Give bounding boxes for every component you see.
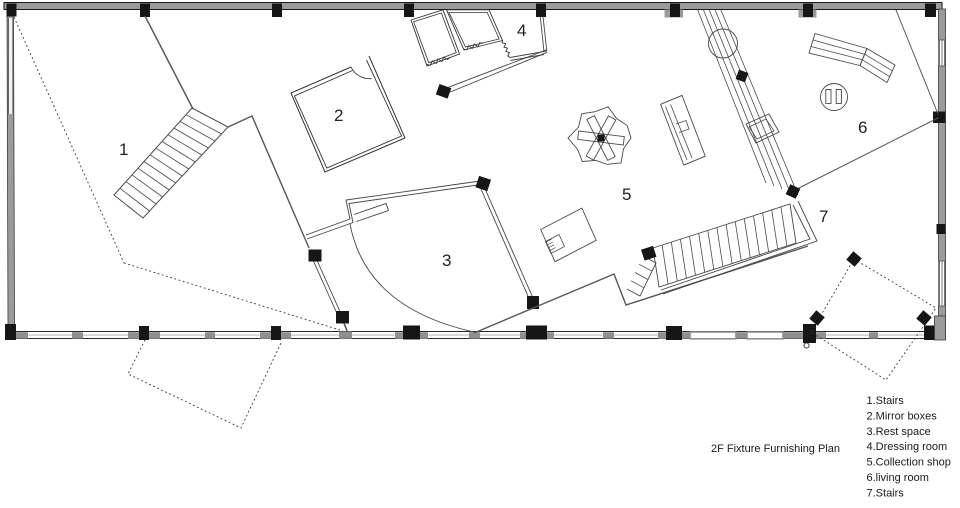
svg-text:7: 7 [819,207,828,226]
svg-text:3.Rest space: 3.Rest space [867,426,931,438]
svg-text:7.Stairs: 7.Stairs [867,487,905,499]
svg-text:2.Mirror boxes: 2.Mirror boxes [867,410,938,422]
svg-text:1: 1 [119,140,128,159]
svg-text:6.living room: 6.living room [867,472,929,484]
svg-text:2: 2 [334,106,343,125]
svg-text:4.Dressing room: 4.Dressing room [867,441,948,453]
svg-text:1.Stairs: 1.Stairs [867,395,905,407]
svg-text:5.Collection shop: 5.Collection shop [867,457,951,469]
svg-text:2F Fixture Furnishing Plan: 2F Fixture Furnishing Plan [711,443,840,455]
svg-text:5: 5 [622,185,631,204]
svg-text:6: 6 [858,118,867,137]
svg-text:3: 3 [442,251,451,270]
svg-text:4: 4 [517,21,526,40]
